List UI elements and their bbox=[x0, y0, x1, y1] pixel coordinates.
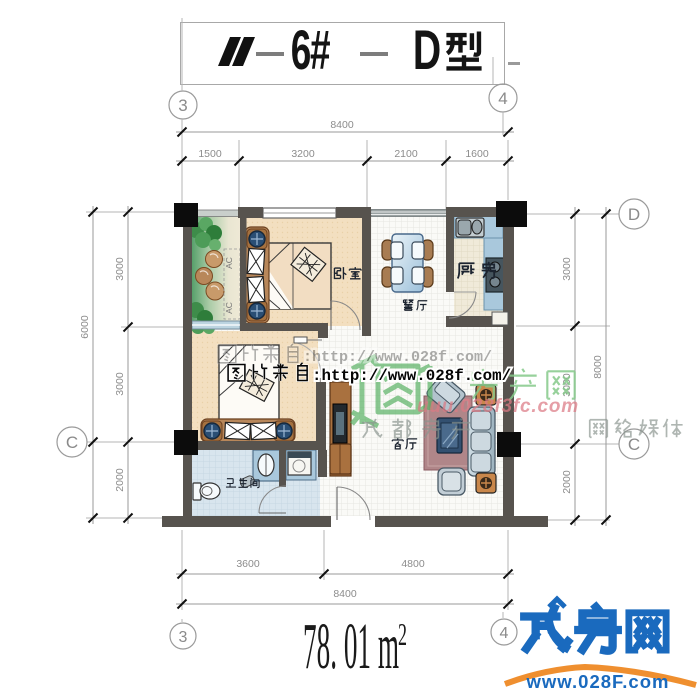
svg-text:4: 4 bbox=[500, 625, 509, 642]
svg-text:8000: 8000 bbox=[592, 355, 604, 379]
svg-text:D: D bbox=[628, 205, 640, 224]
svg-text:6#: 6# bbox=[291, 19, 330, 82]
svg-text:3: 3 bbox=[178, 96, 187, 115]
svg-text:3: 3 bbox=[179, 629, 188, 646]
svg-text:8400: 8400 bbox=[333, 588, 357, 600]
svg-text:2000: 2000 bbox=[561, 470, 573, 494]
svg-text:www.028F.com: www.028F.com bbox=[526, 671, 670, 692]
svg-text:3000: 3000 bbox=[114, 257, 126, 281]
svg-text:4800: 4800 bbox=[401, 558, 425, 570]
svg-text:uuu.028f3fc.com: uuu.028f3fc.com bbox=[417, 396, 579, 417]
svg-text:8400: 8400 bbox=[330, 119, 354, 131]
svg-text:C: C bbox=[628, 435, 640, 454]
svg-text:3200: 3200 bbox=[291, 148, 315, 160]
svg-text:D: D bbox=[413, 19, 441, 82]
svg-text:3600: 3600 bbox=[236, 558, 260, 570]
svg-text:78. 01 m: 78. 01 m bbox=[303, 610, 399, 683]
svg-text:6000: 6000 bbox=[79, 315, 91, 339]
svg-text:AC: AC bbox=[224, 257, 234, 269]
svg-text:2000: 2000 bbox=[114, 468, 126, 492]
svg-text:3000: 3000 bbox=[561, 257, 573, 281]
svg-text::http://www.028f.com/: :http://www.028f.com/ bbox=[312, 367, 511, 385]
svg-text:3000: 3000 bbox=[114, 372, 126, 396]
svg-text:1500: 1500 bbox=[198, 148, 222, 160]
svg-text:C: C bbox=[66, 433, 78, 452]
svg-text:4: 4 bbox=[498, 89, 507, 108]
svg-text:1600: 1600 bbox=[465, 148, 489, 160]
svg-text:AC: AC bbox=[224, 302, 234, 314]
svg-text::http://www.028f.com/: :http://www.028f.com/ bbox=[303, 349, 492, 366]
svg-text:2: 2 bbox=[398, 616, 407, 652]
svg-text:2100: 2100 bbox=[394, 148, 418, 160]
